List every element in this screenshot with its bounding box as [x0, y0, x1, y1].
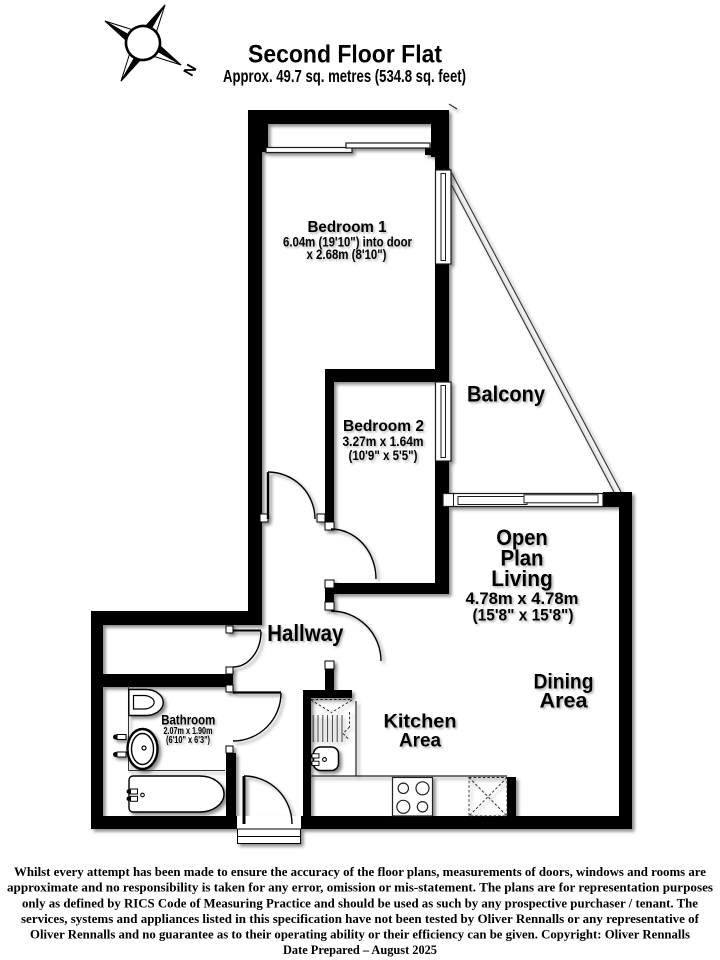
- svg-text:Living: Living: [491, 566, 553, 591]
- svg-text:3.27m x 1.64m: 3.27m x 1.64m: [343, 434, 424, 449]
- svg-text:x 2.68m (8'10"): x 2.68m (8'10"): [307, 247, 387, 262]
- svg-text:Approx. 49.7 sq. metres (534.8: Approx. 49.7 sq. metres (534.8 sq. feet): [223, 66, 466, 86]
- svg-text:only as defined by RICS Code o: only as defined by RICS Code of Measurin…: [22, 895, 698, 910]
- svg-text:Bedroom 1: Bedroom 1: [308, 219, 387, 236]
- svg-text:approximate and no responsibil: approximate and no responsibility is tak…: [7, 880, 713, 895]
- svg-text:Oliver Rennalls and no guarant: Oliver Rennalls and no guarantee as to t…: [30, 926, 690, 941]
- svg-text:Area: Area: [399, 730, 441, 752]
- svg-text:(6'10" x 6'3"): (6'10" x 6'3"): [166, 735, 210, 746]
- svg-text:(10'9" x 5'5"): (10'9" x 5'5"): [349, 448, 418, 463]
- svg-text:Whilst every attempt has been: Whilst every attempt has been made to en…: [14, 864, 706, 879]
- svg-text:Area: Area: [540, 690, 588, 713]
- svg-text:services, systems and applianc: services, systems and appliances listed …: [21, 911, 700, 926]
- svg-text:Hallway: Hallway: [267, 620, 343, 646]
- svg-text:Balcony: Balcony: [467, 382, 546, 407]
- svg-text:Second Floor Flat: Second Floor Flat: [248, 41, 443, 69]
- svg-text:Bedroom 2: Bedroom 2: [343, 418, 424, 435]
- svg-text:Date Prepared – August 2025: Date Prepared – August 2025: [283, 942, 437, 957]
- svg-text:(15'8" x 15'8"): (15'8" x 15'8"): [473, 606, 574, 625]
